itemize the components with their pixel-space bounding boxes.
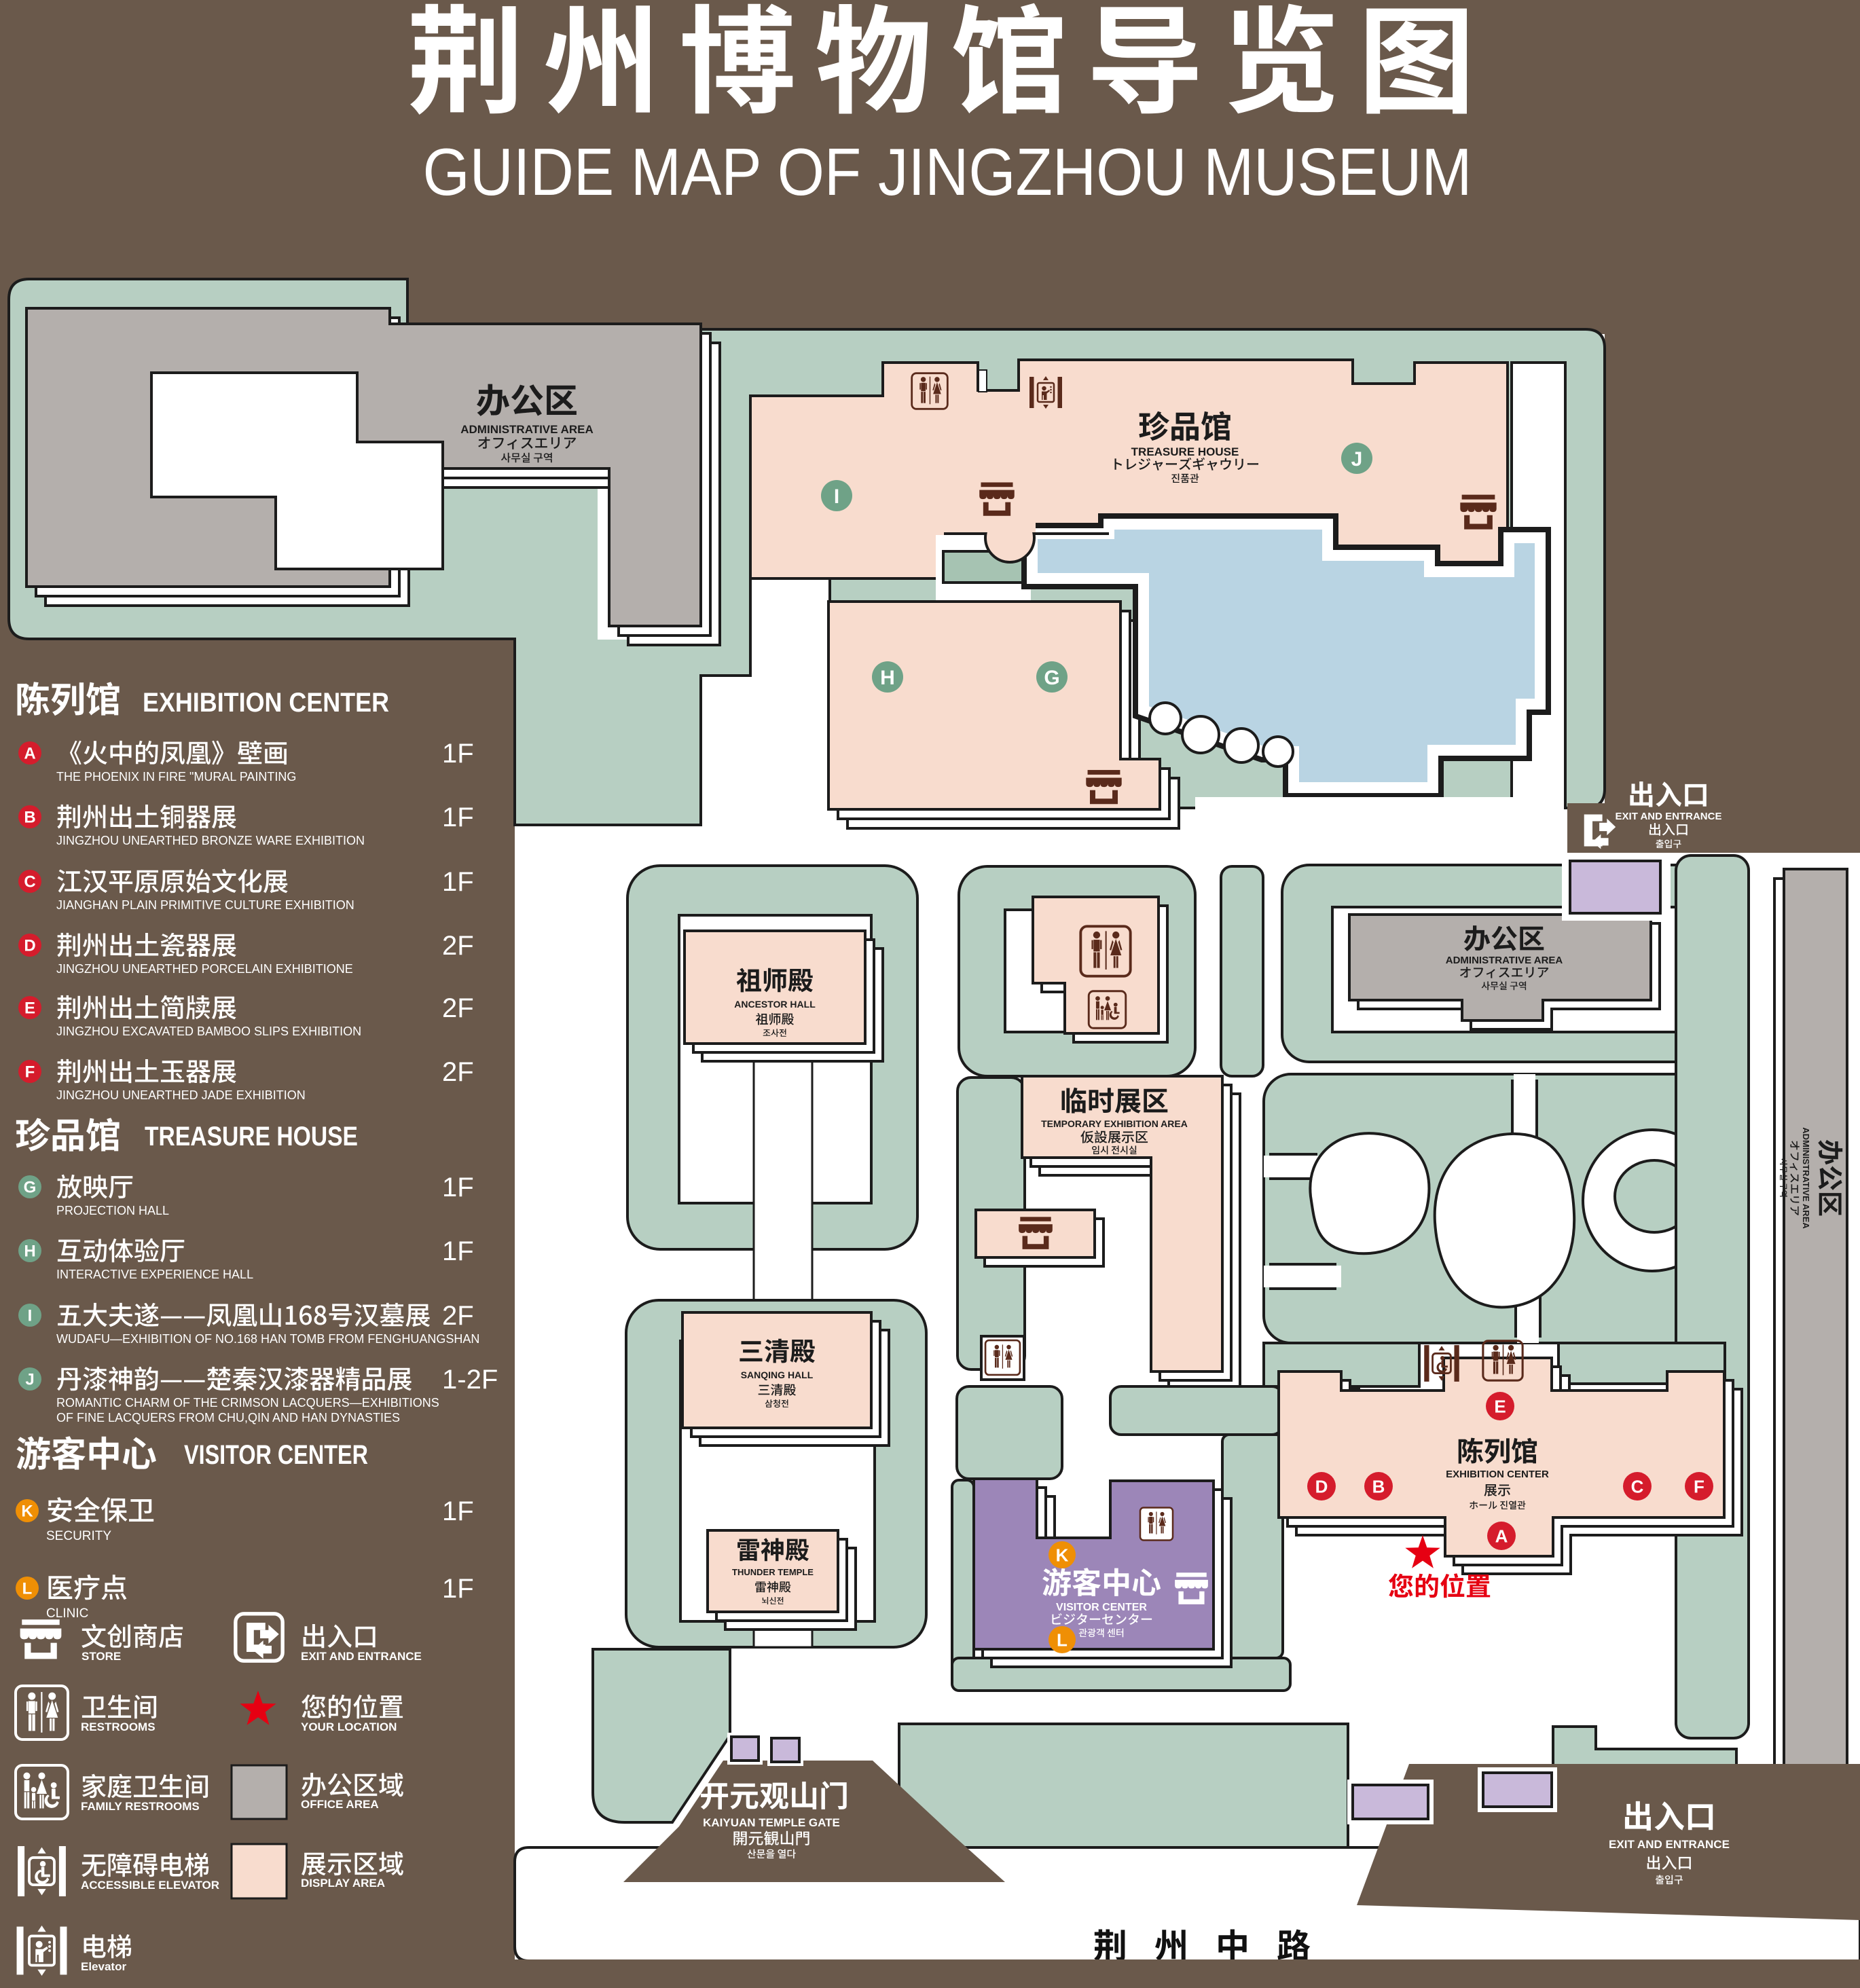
svg-text:ADMINISTRATIVE AREA: ADMINISTRATIVE AREA [1801, 1127, 1811, 1229]
svg-text:C: C [1631, 1476, 1644, 1496]
svg-text:2F: 2F [442, 1301, 474, 1331]
svg-text:RESTROOMS: RESTROOMS [81, 1720, 156, 1733]
svg-text:F: F [1694, 1476, 1704, 1496]
svg-text:VISITOR CENTER: VISITOR CENTER [1056, 1602, 1147, 1613]
svg-text:INTERACTIVE EXPERIENCE HALL: INTERACTIVE EXPERIENCE HALL [56, 1268, 253, 1281]
svg-text:2F: 2F [442, 1057, 474, 1087]
svg-text:EXIT AND ENTRANCE: EXIT AND ENTRANCE [1616, 811, 1722, 822]
svg-text:JINGZHOU UNEARTHED PORCELAIN E: JINGZHOU UNEARTHED PORCELAIN EXHIBITIONE [56, 962, 353, 976]
svg-text:WUDAFU—EXHIBITION OF NO.168 HA: WUDAFU—EXHIBITION OF NO.168 HAN TOMB FRO… [56, 1332, 479, 1346]
svg-text:E: E [24, 999, 35, 1018]
svg-text:THE PHOENIX IN FIRE "MURAL PAI: THE PHOENIX IN FIRE "MURAL PAINTING [56, 770, 296, 784]
svg-text:TEMPORARY EXHIBITION AREA: TEMPORARY EXHIBITION AREA [1041, 1118, 1188, 1129]
svg-text:GUIDE MAP OF JINGZHOU MUSEUM: GUIDE MAP OF JINGZHOU MUSEUM [423, 134, 1472, 209]
svg-text:2F: 2F [442, 931, 474, 961]
svg-text:FAMILY RESTROOMS: FAMILY RESTROOMS [81, 1800, 200, 1813]
svg-text:SECURITY: SECURITY [46, 1529, 111, 1543]
svg-text:JINGZHOU EXCAVATED BAMBOO SLIP: JINGZHOU EXCAVATED BAMBOO SLIPS EXHIBITI… [56, 1025, 361, 1038]
svg-text:J: J [25, 1371, 34, 1389]
svg-text:THUNDER TEMPLE: THUNDER TEMPLE [732, 1567, 814, 1577]
svg-text:A: A [1495, 1526, 1508, 1546]
svg-text:I: I [28, 1307, 33, 1325]
svg-text:C: C [24, 873, 35, 891]
svg-text:E: E [1494, 1396, 1506, 1416]
svg-text:D: D [24, 937, 35, 955]
svg-text:L: L [22, 1580, 33, 1598]
svg-text:1F: 1F [442, 1574, 474, 1604]
svg-text:ADMINISTRATIVE AREA: ADMINISTRATIVE AREA [460, 423, 594, 436]
svg-text:J: J [1351, 448, 1363, 471]
svg-text:K: K [21, 1503, 33, 1521]
svg-text:1F: 1F [442, 867, 474, 897]
svg-text:1F: 1F [442, 1173, 474, 1202]
svg-text:F: F [25, 1063, 35, 1082]
svg-text:JINGZHOU UNEARTHED JADE EXHIBI: JINGZHOU UNEARTHED JADE EXHIBITION [56, 1088, 306, 1102]
svg-text:ACCESSIBLE ELEVATOR: ACCESSIBLE ELEVATOR [81, 1879, 219, 1892]
svg-text:G: G [24, 1179, 37, 1197]
svg-text:JINGZHOU UNEARTHED BRONZE WARE: JINGZHOU UNEARTHED BRONZE WARE EXHIBITIO… [56, 834, 365, 847]
svg-text:TREASURE HOUSE: TREASURE HOUSE [145, 1122, 358, 1152]
svg-text:EXHIBITION CENTER: EXHIBITION CENTER [143, 688, 389, 718]
svg-text:B: B [24, 809, 35, 827]
svg-text:SANQING HALL: SANQING HALL [741, 1369, 814, 1380]
svg-text:YOUR LOCATION: YOUR LOCATION [301, 1720, 397, 1733]
svg-text:H: H [880, 667, 895, 689]
svg-text:VISITOR CENTER: VISITOR CENTER [184, 1440, 368, 1470]
svg-text:I: I [834, 485, 839, 508]
svg-text:ANCESTOR HALL: ANCESTOR HALL [734, 999, 816, 1010]
svg-text:ROMANTIC CHARM OF THE CRIMSON: ROMANTIC CHARM OF THE CRIMSON LACQUERS—E… [56, 1396, 439, 1410]
svg-text:EXIT AND ENTRANCE: EXIT AND ENTRANCE [301, 1650, 422, 1663]
svg-text:G: G [1044, 667, 1059, 689]
svg-text:D: D [1315, 1476, 1328, 1496]
svg-text:A: A [24, 745, 35, 763]
svg-text:2F: 2F [442, 993, 474, 1023]
svg-text:1F: 1F [442, 739, 474, 769]
svg-text:1F: 1F [442, 803, 474, 832]
svg-text:EXHIBITION CENTER: EXHIBITION CENTER [1446, 1469, 1549, 1480]
svg-text:STORE: STORE [81, 1650, 121, 1663]
svg-text:JIANGHAN PLAIN PRIMITIVE CULTU: JIANGHAN PLAIN PRIMITIVE CULTURE EXHIBIT… [56, 898, 354, 912]
svg-text:H: H [24, 1242, 35, 1261]
svg-text:OF FINE LACQUERS FROM CHU,QIN: OF FINE LACQUERS FROM CHU,QIN AND HAN DY… [56, 1411, 400, 1424]
svg-text:L: L [1057, 1630, 1068, 1650]
svg-text:1F: 1F [442, 1496, 474, 1526]
svg-text:K: K [1056, 1545, 1069, 1565]
svg-text:KAIYUAN TEMPLE GATE: KAIYUAN TEMPLE GATE [703, 1816, 840, 1829]
svg-text:Elevator: Elevator [81, 1960, 126, 1973]
svg-text:1F: 1F [442, 1236, 474, 1266]
svg-text:TREASURE HOUSE: TREASURE HOUSE [1131, 445, 1239, 458]
svg-text:OFFICE AREA: OFFICE AREA [301, 1798, 379, 1811]
svg-text:CLINIC: CLINIC [46, 1606, 88, 1621]
svg-text:PROJECTION HALL: PROJECTION HALL [56, 1204, 169, 1217]
svg-text:B: B [1372, 1476, 1385, 1496]
svg-text:EXIT AND ENTRANCE: EXIT AND ENTRANCE [1609, 1838, 1730, 1851]
svg-text:DISPLAY AREA: DISPLAY AREA [301, 1877, 385, 1890]
svg-text:1-2F: 1-2F [442, 1365, 498, 1395]
svg-text:ADMINISTRATIVE AREA: ADMINISTRATIVE AREA [1446, 955, 1563, 966]
